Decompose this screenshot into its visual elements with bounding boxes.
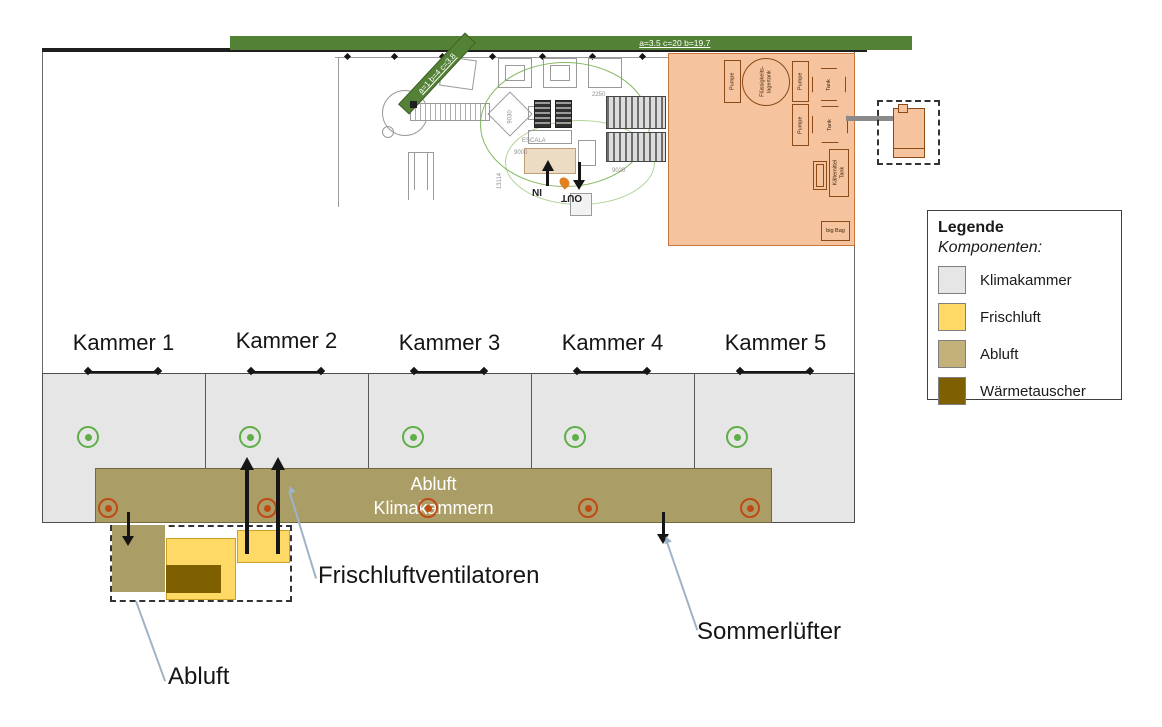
small-unit-box [813,161,827,190]
fresh-air-up-arrow-shaft [245,469,249,554]
chamber-label-1: Kammer 1 [42,330,205,356]
chamber-label-3: Kammer 3 [368,330,531,356]
legend-item-waermetauscher: Wärmetauscher [938,377,1111,405]
liquid-tank-label-1: Flüssigkeits- [759,67,766,98]
external-tank [893,108,925,158]
supply-air-target [77,426,99,448]
legend-title: Legende [938,219,1111,237]
legend-swatch-waermetauscher [938,377,966,405]
horizontal-dimension-text: a=3.5 c=20 b=19.7 [639,38,710,48]
exhaust-air-target [257,498,277,518]
legend-label-klimakammer: Klimakammer [980,272,1072,289]
cad-machine-block [555,100,572,128]
legend-label-waermetauscher: Wärmetauscher [980,383,1086,400]
cad-conveyor-right [606,132,666,162]
abluft-leader-line [135,601,166,682]
legend-swatch-klimakammer [938,266,966,294]
sommerluefter-callout: Sommerlüfter [697,618,841,646]
chamber-dim-line [577,371,647,373]
diagonal-bar-end-mark [410,101,417,108]
chamber-label-4: Kammer 4 [531,330,694,356]
cad-dim-text: 13114 [497,173,503,189]
pump-1-label: Pumpe [729,73,736,90]
legend-item-frischluft: Frischluft [938,303,1111,331]
horizontal-dimension-bar: a=3.5 c=20 b=19.7 [230,36,912,50]
supply-air-target [726,426,748,448]
cad-door-frame-inner [414,152,428,190]
pump-3: Pumpe [792,104,809,146]
legend-swatch-frischluft [938,303,966,331]
external-tank-bottom-band [893,148,925,158]
big-bag-box: big Bag [821,221,850,241]
chamber-dim-line [251,371,321,373]
cad-machine-block [534,100,551,128]
chamber-dim-line [740,371,810,373]
exhaust-down-arrow-head [122,536,134,546]
heat-exchanger-box [166,565,221,593]
chamber-dim-line [88,371,158,373]
in-label: IN [532,181,542,199]
supply-air-target [239,426,261,448]
legend-label-abluft: Abluft [980,346,1018,363]
pump-1: Pumpe [724,60,741,103]
in-arrow-shaft [546,170,549,186]
pump-2-label: Pumpe [797,73,804,90]
cad-dim-text: ESCALA [522,138,546,144]
facility-diagram: 2250 9030 ESCALA 9000 9020 13114 IN OUT … [0,0,1162,727]
summer-vent-down-arrow-shaft [662,512,665,535]
tank-2-label: Tank [827,119,833,131]
cad-dim-text: 9030 [508,110,514,123]
exhaust-air-target [418,498,438,518]
chamber-label-2: Kammer 2 [205,328,368,354]
frischluft-callout: Frischluftventilatoren [318,562,539,590]
legend-item-klimakammer: Klimakammer [938,266,1111,294]
legend-label-frischluft: Frischluft [980,309,1041,326]
supply-air-target [402,426,424,448]
chamber-label-5: Kammer 5 [694,330,857,356]
fresh-air-up-arrow-shaft [276,469,280,554]
cad-dim-text: 9000 [514,150,527,156]
liquid-storage-tank: Flüssigkeits- lagertank [742,58,790,106]
liquid-tank-label-2: lagertank [766,67,773,98]
legend-item-abluft: Abluft [938,340,1111,368]
exhaust-air-target [98,498,118,518]
legend-box: Legende Komponenten: Klimakammer Frischl… [927,210,1122,400]
external-tank-notch [898,104,908,113]
tank-1: Tank [812,68,846,101]
legend-swatch-abluft [938,340,966,368]
exhaust-air-target [578,498,598,518]
tank-1-label: Tank [826,79,832,91]
refrigerant-tank: Kältemittel Tank [829,149,849,197]
in-label-text: IN [532,186,542,197]
chamber-dim-line [414,371,484,373]
cad-conveyor-right [606,96,666,129]
cad-conveyor [410,103,490,121]
cad-small-circle [382,126,394,138]
refrigerant-tank-label-2: Tank [839,160,846,186]
cad-dim-text: 9020 [612,168,625,174]
pump-3-label: Pumpe [797,116,804,133]
supply-air-target [564,426,586,448]
out-arrow-shaft [578,162,581,181]
cad-dim-text: 2250 [592,92,605,98]
exhaust-band-line1: Abluft [96,472,771,496]
abluft-callout: Abluft [168,663,229,691]
out-label-text: OUT [561,192,582,203]
big-bag-label: big Bag [826,228,845,234]
tank-2: Tank [812,106,848,143]
exhaust-air-target [740,498,760,518]
sommerluefter-leader-line [666,542,698,631]
legend-subtitle: Komponenten: [938,239,1111,257]
exhaust-outlet-box [112,525,165,592]
exhaust-down-arrow-shaft [127,512,130,537]
cad-dimension-vline-left [338,57,339,207]
pump-2: Pumpe [792,61,809,102]
refrigerant-tank-label-1: Kältemittel [832,160,839,186]
